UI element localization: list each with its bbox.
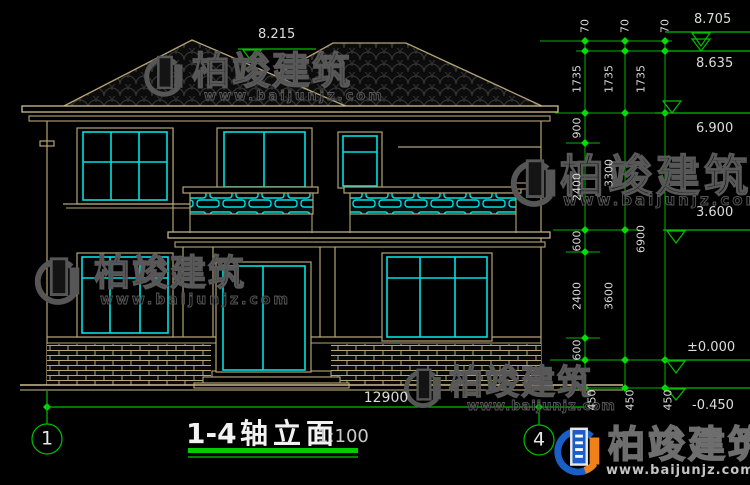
level-ground: -0.450	[692, 399, 734, 412]
level-floor1: ±0.000	[687, 341, 735, 354]
watermark-url: www.baijunjz.com	[100, 293, 291, 307]
level-eave: 6.900	[696, 122, 733, 135]
dim-70: 70	[580, 19, 591, 33]
title-scale: 1:100	[317, 428, 369, 446]
watermark-logo-icon	[140, 50, 190, 104]
dim-450: 450	[663, 390, 674, 411]
watermark-logo-icon	[400, 362, 448, 416]
brand-name: 柏竣建筑	[608, 426, 750, 463]
dim-70: 70	[660, 19, 671, 33]
watermark-logo-icon	[30, 252, 88, 312]
title-axis-range: 1-4	[186, 420, 237, 448]
railing-posts	[190, 214, 516, 233]
dim-450: 450	[587, 390, 598, 411]
watermark-logo-icon	[506, 152, 564, 216]
watermark-brand: 柏竣建筑	[94, 256, 246, 292]
balcony-railing-center	[183, 187, 318, 214]
dim-3300: 3300	[604, 159, 615, 187]
balcony-door-2f	[217, 128, 312, 188]
level-floor2: 3.600	[696, 206, 733, 219]
window-1f-right	[382, 253, 492, 341]
watermark-url: www.baijunjz.com	[204, 90, 385, 103]
dim-600: 600	[572, 340, 583, 361]
watermark-brand: 柏竣建筑	[449, 366, 593, 400]
watermark-brand: 柏竣建筑	[192, 52, 352, 90]
floor-slab-band	[168, 232, 550, 247]
axis-number-4: 4	[533, 431, 545, 450]
dim-600: 600	[572, 231, 583, 252]
dim-70: 70	[620, 19, 631, 33]
dim-1735: 1735	[604, 65, 615, 93]
dim-1735: 1735	[572, 65, 583, 93]
axis-number-1: 1	[41, 430, 53, 449]
level-ridge-top: 8.705	[694, 13, 731, 26]
dim-900: 900	[572, 118, 583, 139]
brand-url: www.baijunjz.com	[606, 464, 750, 477]
window-2f-left	[63, 128, 207, 208]
cad-elevation-canvas: 柏竣建筑 www.baijunjz.com 柏竣建筑 www.baijunjz.…	[0, 0, 750, 485]
dim-2400: 2400	[572, 282, 583, 310]
dim-1735: 1735	[636, 65, 647, 93]
dim-overall-width: 12900	[364, 391, 409, 405]
brand-logo-icon	[550, 421, 608, 483]
dim-3600: 3600	[604, 282, 615, 310]
dim-6900: 6900	[636, 225, 647, 253]
dim-450: 450	[625, 390, 636, 411]
window-2f-small	[338, 132, 382, 188]
level-ridge-front: 8.215	[258, 28, 295, 41]
level-ridge-under: 8.635	[696, 57, 733, 70]
dim-2400: 2400	[572, 173, 583, 201]
